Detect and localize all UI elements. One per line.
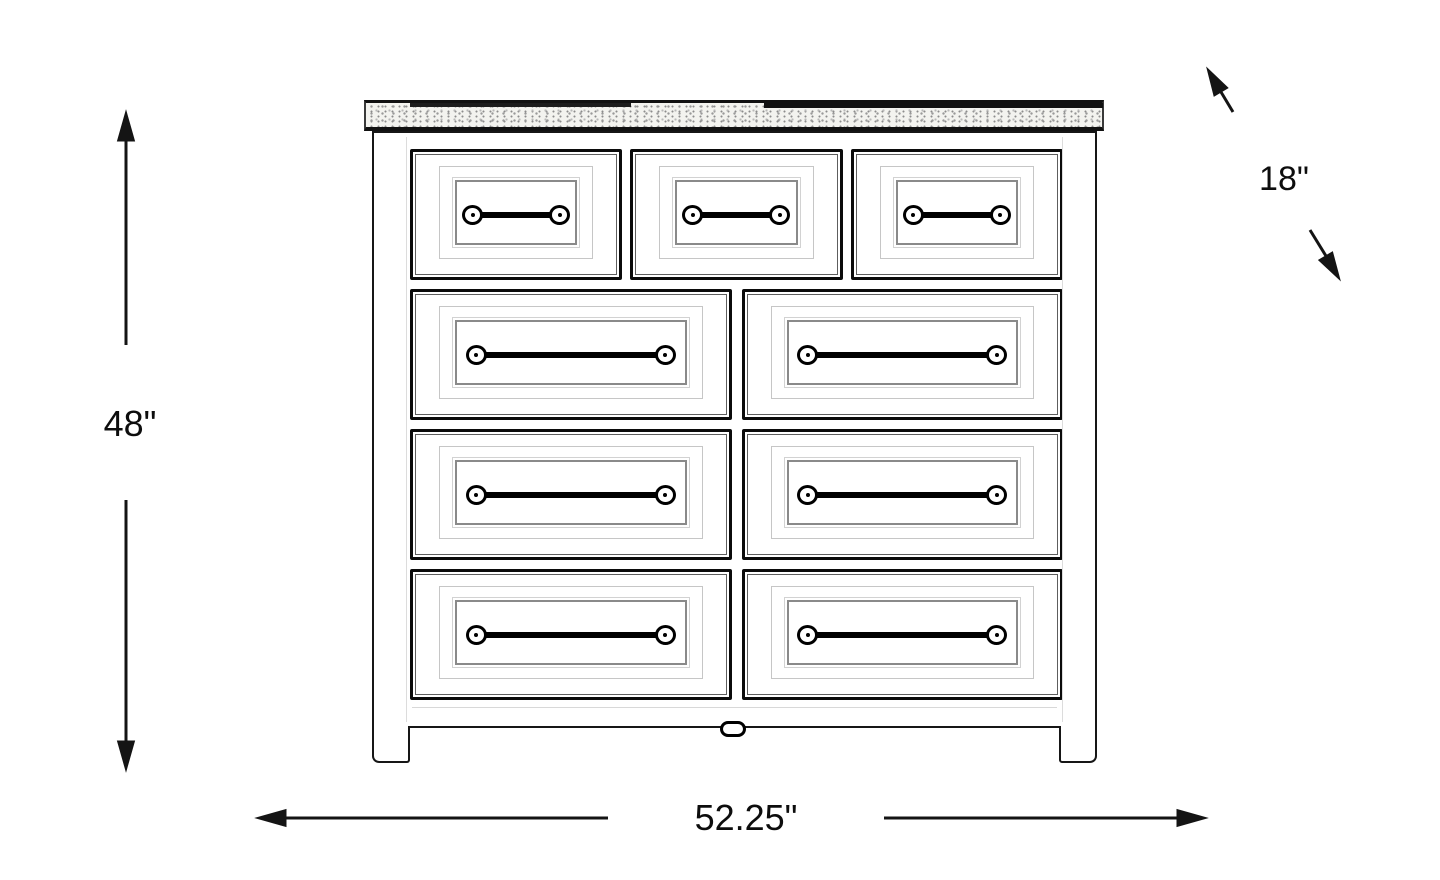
height-dimension-label: 48"	[80, 403, 180, 445]
height-arrow-bottom	[118, 500, 135, 771]
depth-arrow-up-left	[1207, 68, 1233, 112]
dimension-arrows	[0, 0, 1440, 880]
depth-arrow-down-right	[1310, 230, 1340, 280]
width-dimension-label: 52.25"	[646, 797, 846, 839]
height-arrow-top	[118, 111, 135, 345]
depth-dimension-label: 18"	[1234, 160, 1334, 199]
width-arrow-left	[256, 810, 608, 827]
furniture-dimension-diagram: 48" 18" 52.25"	[0, 0, 1440, 880]
width-arrow-right	[884, 810, 1207, 827]
